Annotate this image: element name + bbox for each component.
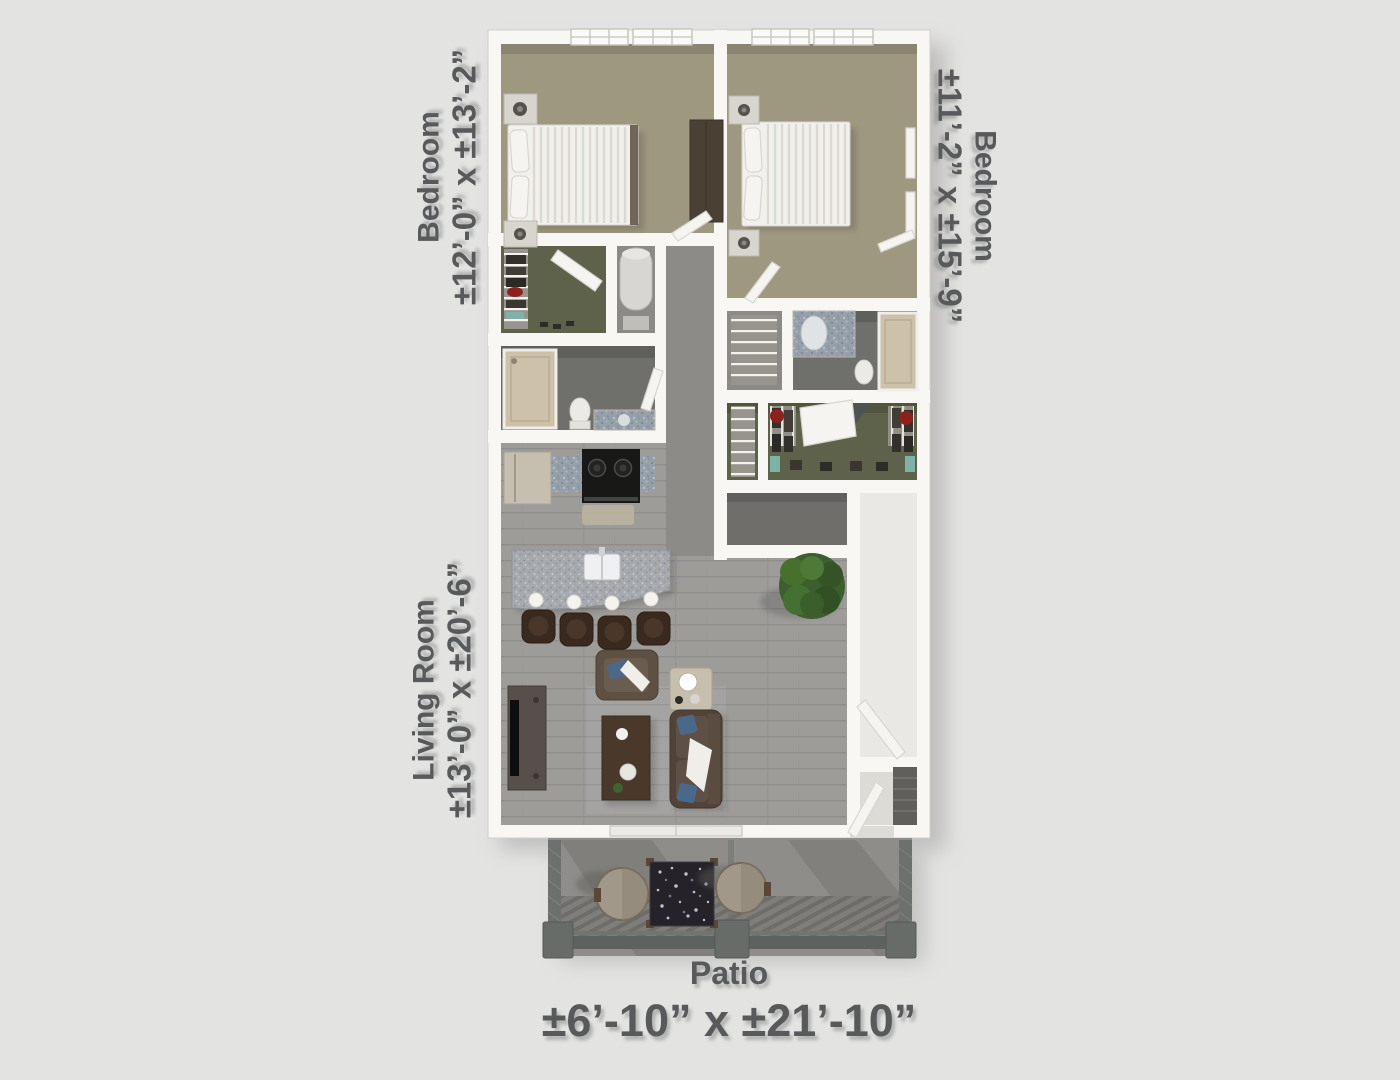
refrigerator <box>504 452 551 504</box>
hallway-floor <box>666 246 714 556</box>
room-name: Bedroom <box>413 49 447 305</box>
toilet <box>570 398 590 429</box>
stairwell <box>893 767 917 825</box>
vanity <box>594 410 655 430</box>
teal-item <box>506 312 524 319</box>
water-heater-closet <box>620 248 652 330</box>
room-dimensions: ±13’-0” x ±20’-6” <box>441 562 478 818</box>
floor-plan-page: Bedroom ±12’-0” x ±13’-2” Bedroom ±11’-2… <box>0 0 1400 1080</box>
closet-shelving <box>731 406 755 477</box>
tv <box>510 700 519 776</box>
bed <box>508 125 638 225</box>
toilet <box>855 360 873 384</box>
label-patio: Patio ±6’-10” x ±21’-10” <box>542 956 917 1046</box>
place-setting <box>529 593 543 607</box>
pillow <box>510 129 530 172</box>
room-name: Patio <box>542 956 917 992</box>
linen-shelves <box>731 315 777 385</box>
faucet <box>599 547 605 556</box>
oven-handle <box>584 497 638 501</box>
nightstand <box>504 94 537 124</box>
window <box>571 29 628 45</box>
place-setting <box>644 592 658 606</box>
teal-item <box>770 456 780 472</box>
room-dimensions: ±12’-0” x ±13’-2” <box>446 49 483 305</box>
patio-post <box>886 922 916 958</box>
room-dimensions: ±11’-2” x ±15’-9” <box>931 69 968 324</box>
window <box>814 29 873 45</box>
throw-pillow <box>676 782 697 803</box>
label-bedroom-right: Bedroom ±11’-2” x ±15’-9” <box>931 69 1002 324</box>
kitchen-island <box>512 547 674 649</box>
tub-shower <box>504 350 556 428</box>
linen-closet <box>731 315 777 385</box>
side-table <box>670 668 712 710</box>
patio-table <box>646 858 718 928</box>
patio-post <box>543 922 573 958</box>
place-setting <box>567 595 581 609</box>
pillow <box>743 175 762 220</box>
sink <box>801 316 827 350</box>
room-dimensions: ±6’-10” x ±21’-10” <box>542 996 917 1046</box>
window <box>752 29 809 45</box>
kitchen-mat <box>582 505 634 525</box>
closet-mirror-panel <box>906 128 915 178</box>
bed <box>742 122 850 226</box>
footboard <box>630 125 638 225</box>
nightstand <box>729 96 759 124</box>
floor-plan-rendering <box>0 0 1400 1080</box>
room-name: Living Room <box>408 562 442 818</box>
range <box>582 449 640 503</box>
patio-post <box>715 920 749 958</box>
armchair <box>596 650 658 700</box>
closet-mirror-panel <box>906 192 915 236</box>
label-living-room: Living Room ±13’-0” x ±20’-6” <box>408 562 479 818</box>
nightstand <box>729 230 759 256</box>
nightstand <box>504 221 537 247</box>
patio <box>543 838 916 958</box>
place-setting <box>605 596 619 610</box>
red-hat-box <box>770 409 784 423</box>
drip-pan <box>623 316 649 330</box>
red-hat-box <box>899 411 913 425</box>
room-name: Bedroom <box>968 69 1002 324</box>
tv-console <box>508 686 546 790</box>
pillow <box>744 128 762 173</box>
coffee-table <box>602 716 656 806</box>
patio-sliding-door <box>610 826 742 836</box>
pillow <box>510 176 529 219</box>
label-bedroom-left: Bedroom ±12’-0” x ±13’-2” <box>413 49 484 305</box>
teal-item <box>905 456 915 472</box>
window <box>633 29 692 45</box>
red-hat-box <box>507 287 523 297</box>
sofa <box>670 710 726 812</box>
